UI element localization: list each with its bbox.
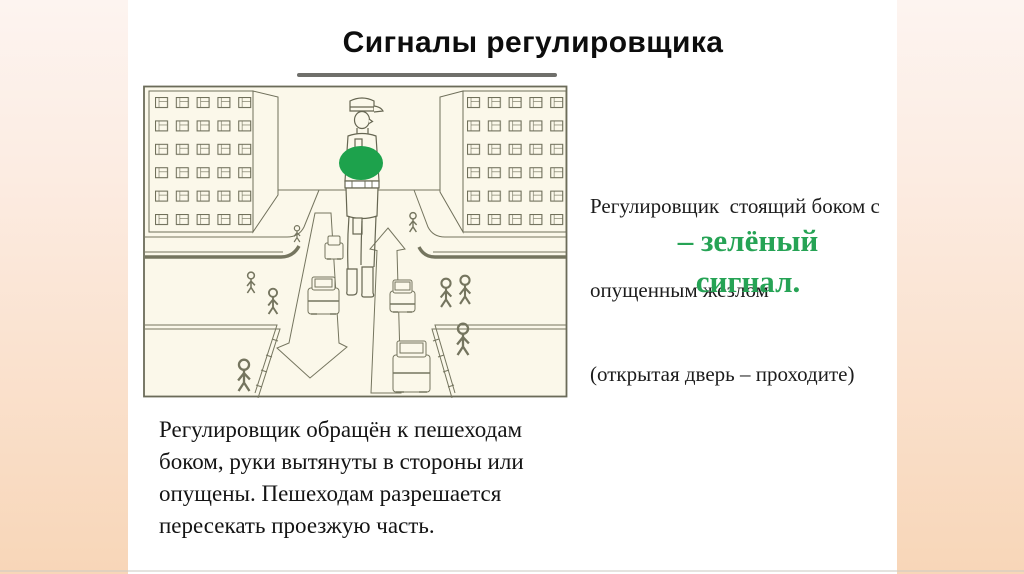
- text-line: – зелёный: [590, 220, 906, 261]
- building-right: [440, 91, 566, 232]
- green-signal-ellipse: [339, 146, 383, 180]
- controller-boot-left: [347, 269, 357, 295]
- caption-text: Регулировщик обращён к пешеходам боком, …: [159, 414, 611, 542]
- scan-artifact-line: [297, 73, 557, 77]
- text-line: сигнал.: [590, 261, 906, 302]
- car-left-lane: [308, 277, 339, 314]
- controller-boot-right: [362, 267, 374, 297]
- controller-cap: [350, 98, 374, 111]
- text-line: пересекать проезжую часть.: [159, 510, 611, 542]
- slide-title: Сигналы регулировщика: [143, 26, 923, 60]
- signal-name: – зелёный сигнал.: [590, 220, 906, 302]
- bottom-hairline: [0, 570, 1024, 572]
- text-line: боком, руки вытянуты в стороны или: [159, 446, 611, 478]
- car-right-lane: [390, 280, 415, 312]
- presentation-slide: Сигналы регулировщика: [0, 0, 1024, 574]
- right-gradient-border: [897, 0, 1024, 574]
- intersection-illustration: [143, 85, 568, 398]
- controller-belt: [345, 181, 379, 188]
- text-line: Регулировщик стоящий боком с: [590, 192, 906, 220]
- controller-tunic: [346, 188, 378, 219]
- text-line: Регулировщик обращён к пешеходам: [159, 414, 611, 446]
- left-gradient-border: [0, 0, 128, 574]
- text-line: опущены. Пешеходам разрешается: [159, 478, 611, 510]
- car-far-left-lane: [325, 236, 343, 259]
- building-left: [149, 91, 278, 232]
- controller-head: [355, 112, 370, 129]
- truck-right-lane: [393, 341, 430, 392]
- text-line: (открытая дверь – проходите): [590, 360, 906, 388]
